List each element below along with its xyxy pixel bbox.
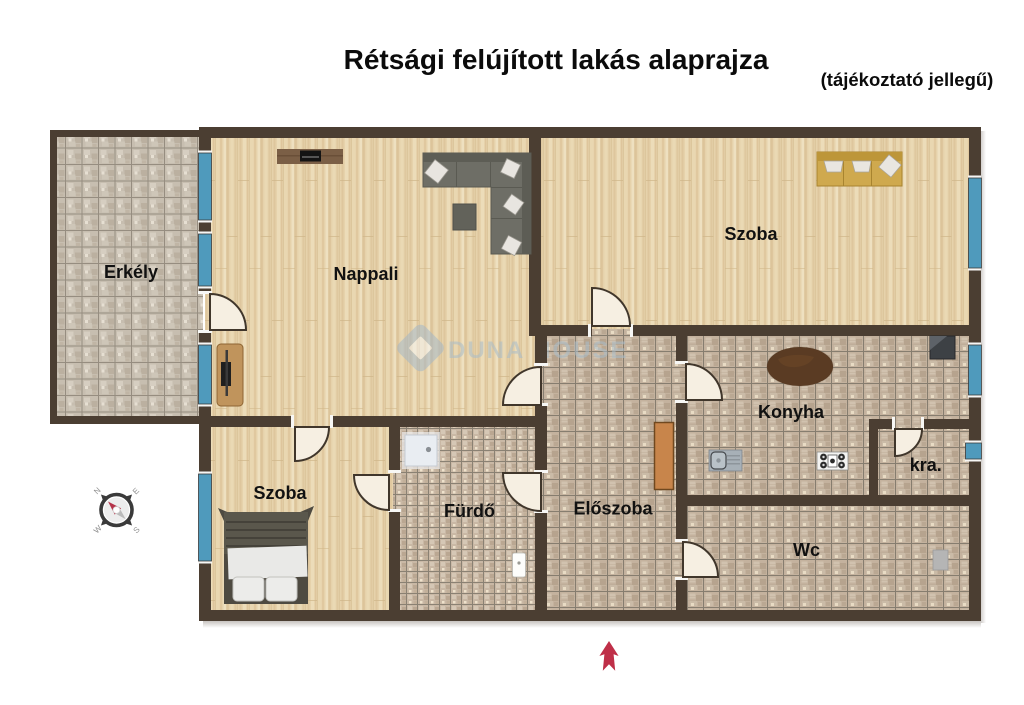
svg-text:Wc: Wc <box>793 540 820 560</box>
svg-text:Nappali: Nappali <box>333 264 398 284</box>
svg-text:Erkély: Erkély <box>104 262 158 282</box>
svg-text:kra.: kra. <box>910 455 942 475</box>
svg-text:Fürdő: Fürdő <box>444 501 495 521</box>
svg-text:Rétsági felújított lakás alap: Rétsági felújított lakás alaprajza <box>344 44 769 75</box>
svg-text:Előszoba: Előszoba <box>573 499 653 519</box>
svg-text:Szoba: Szoba <box>724 224 778 244</box>
svg-text:(tájékoztató jellegű): (tájékoztató jellegű) <box>821 69 994 90</box>
svg-text:Szoba: Szoba <box>253 483 307 503</box>
svg-text:Konyha: Konyha <box>758 402 825 422</box>
